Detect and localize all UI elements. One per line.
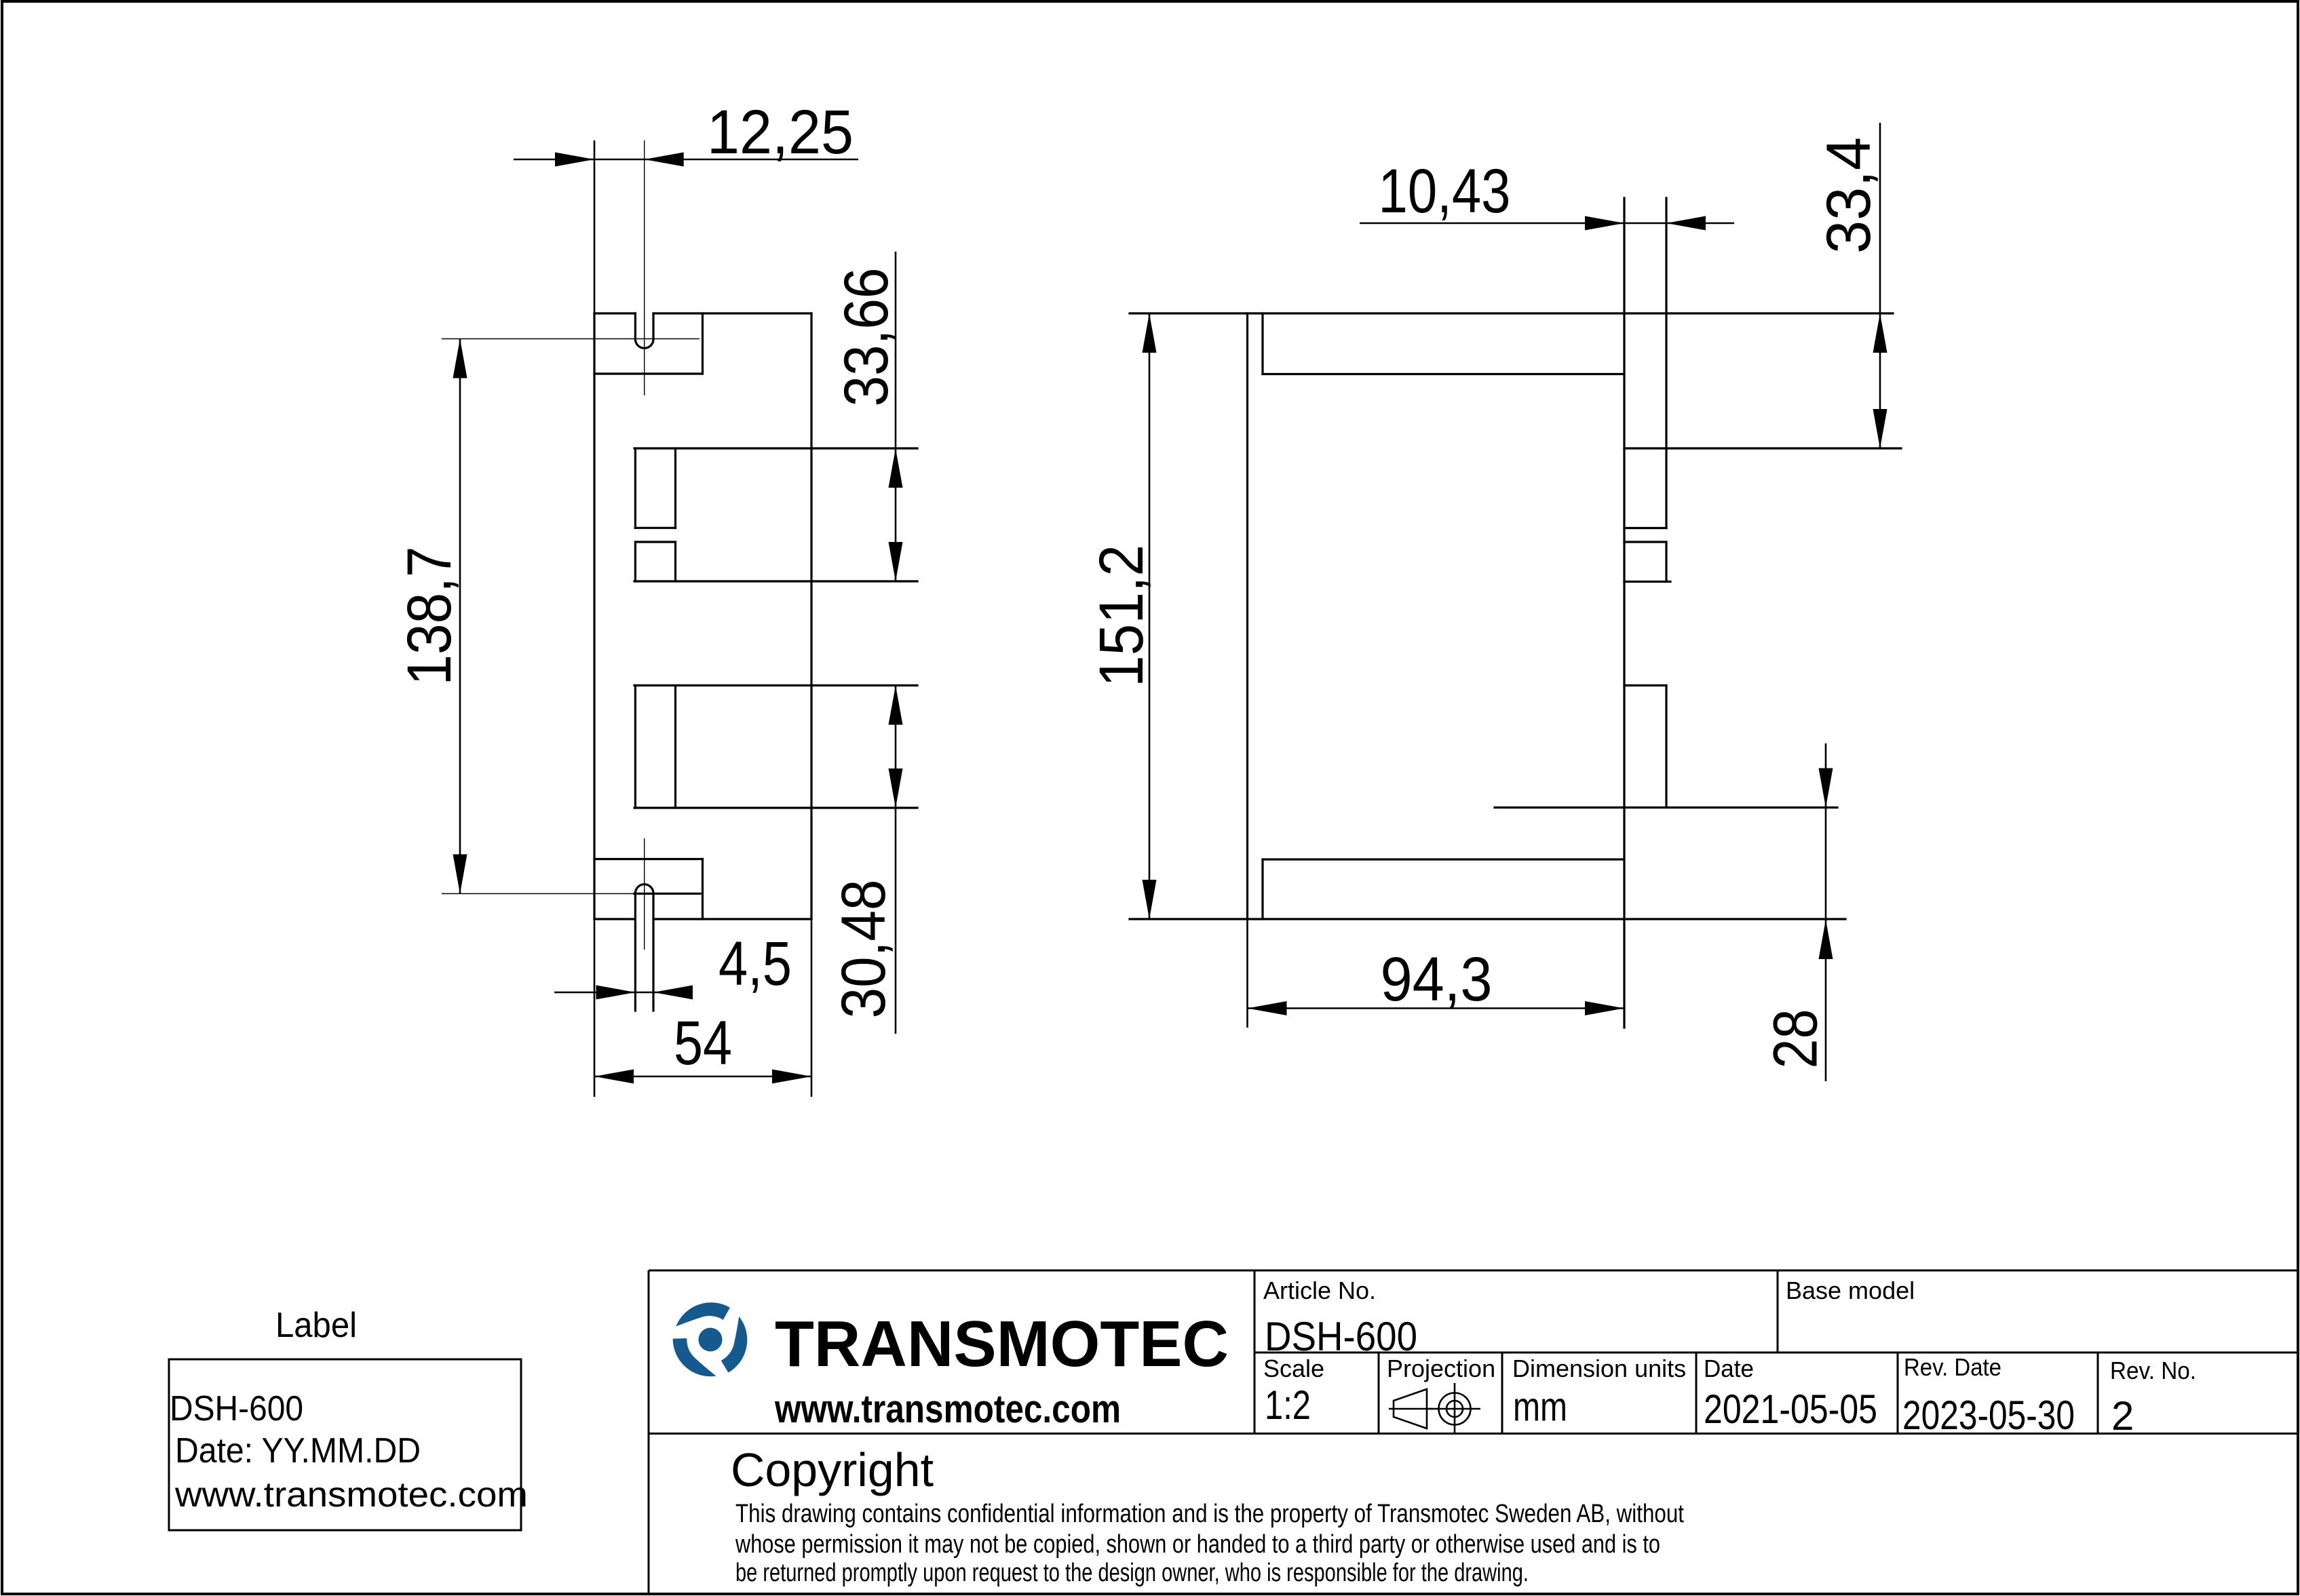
svg-text:10,43: 10,43 [1379,157,1511,226]
svg-text:94,3: 94,3 [1381,945,1493,1014]
svg-text:DSH-600: DSH-600 [1265,1314,1417,1359]
svg-text:2021-05-05: 2021-05-05 [1704,1386,1877,1432]
svg-text:Scale: Scale [1263,1355,1324,1382]
svg-text:Base model: Base model [1786,1277,1915,1304]
svg-text:Date: Date [1704,1355,1754,1382]
svg-text:151,2: 151,2 [1087,545,1156,687]
svg-text:This drawing contains confiden: This drawing contains confidential infor… [735,1500,1684,1528]
svg-text:Rev. Date: Rev. Date [1904,1353,2001,1381]
svg-text:TRANSMOTEC: TRANSMOTEC [775,1308,1229,1380]
svg-text:Projection: Projection [1387,1355,1495,1382]
svg-text:Label: Label [275,1306,357,1345]
svg-text:whose permission it may not be: whose permission it may not be copied, s… [735,1530,1660,1559]
svg-text:Dimension units: Dimension units [1512,1355,1686,1382]
svg-text:mm: mm [1513,1384,1567,1430]
svg-text:Article No.: Article No. [1263,1277,1376,1304]
svg-text:28: 28 [1761,1009,1831,1069]
svg-text:33,66: 33,66 [832,268,901,407]
svg-text:2: 2 [2111,1393,2134,1439]
svg-text:Rev. No.: Rev. No. [2110,1357,2196,1384]
svg-text:2023-05-30: 2023-05-30 [1902,1393,2075,1438]
svg-text:54: 54 [674,1009,732,1078]
svg-text:30,48: 30,48 [829,880,898,1019]
svg-text:DSH-600: DSH-600 [170,1389,303,1428]
svg-text:1:2: 1:2 [1265,1382,1311,1428]
svg-text:4,5: 4,5 [718,929,792,998]
svg-text:33,4: 33,4 [1814,137,1883,254]
svg-text:12,25: 12,25 [707,98,854,167]
svg-text:www.transmotec.com: www.transmotec.com [174,1475,528,1515]
svg-text:be returned promptly upon requ: be returned promptly upon request to the… [735,1559,1529,1587]
svg-text:Date: YY.MM.DD: Date: YY.MM.DD [175,1431,421,1471]
svg-text:138,7: 138,7 [395,547,464,686]
svg-text:Copyright: Copyright [731,1443,934,1496]
svg-text:www.transmotec.com: www.transmotec.com [774,1387,1121,1431]
